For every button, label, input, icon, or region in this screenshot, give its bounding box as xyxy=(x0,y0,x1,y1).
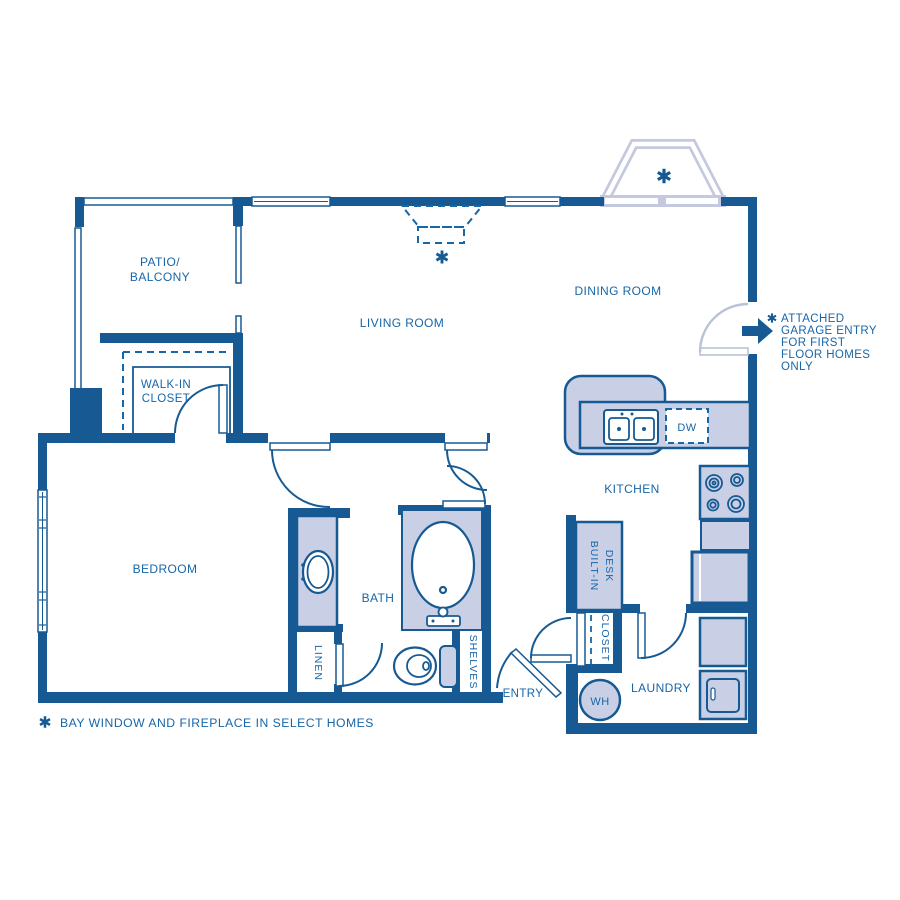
garage-annotation: ATTACHED GARAGE ENTRY FOR FIRST FLOOR HO… xyxy=(742,313,877,373)
water-heater: WH xyxy=(580,680,620,720)
top-wall-window xyxy=(505,197,560,206)
living-room-label: LIVING ROOM xyxy=(360,316,444,330)
garage-note-line4: FLOOR HOMES xyxy=(781,349,870,361)
closet-door xyxy=(577,613,585,666)
bath-door xyxy=(443,466,485,508)
bedroom-label: BEDROOM xyxy=(133,562,198,576)
doors xyxy=(175,304,748,697)
bay-window xyxy=(600,144,726,207)
room-labels: PATIO/ BALCONY LIVING ROOM DINING ROOM W… xyxy=(130,255,691,700)
garage-arrow-icon xyxy=(742,318,773,344)
linen-label: LINEN xyxy=(312,645,324,681)
toilet xyxy=(394,646,457,687)
garage-entry-door xyxy=(700,304,748,355)
dining-room-label: DINING ROOM xyxy=(574,284,661,298)
stove xyxy=(700,466,750,519)
patio-railing-left xyxy=(75,228,81,391)
patio-label-line1: PATIO/ xyxy=(140,255,180,269)
laundry-door xyxy=(638,613,686,658)
patio-slider-glass xyxy=(236,316,241,333)
asterisk-icon xyxy=(436,251,447,264)
footnote-text: BAY WINDOW AND FIREPLACE IN SELECT HOMES xyxy=(60,716,374,730)
floor-plan-svg: DW xyxy=(0,0,900,900)
dryer xyxy=(700,671,746,719)
entry-label: ENTRY xyxy=(503,688,544,700)
kitchen-label: KITCHEN xyxy=(604,482,659,496)
asterisk-icon xyxy=(40,716,50,728)
vanity-sink xyxy=(297,516,337,627)
built-in-desk-label-line2: DESK xyxy=(603,550,615,583)
built-in-desk-label-line1: BUILT-IN xyxy=(588,541,600,591)
top-wall-window xyxy=(252,197,330,206)
garage-note-line1: ATTACHED xyxy=(781,313,844,325)
bathtub xyxy=(402,510,482,630)
bedroom-window xyxy=(38,490,47,632)
dishwasher-label: DW xyxy=(677,422,696,434)
garage-note-line2: GARAGE ENTRY xyxy=(781,325,877,337)
kitchen-counter-lower xyxy=(701,521,750,550)
shelves-label: SHELVES xyxy=(467,635,479,690)
walk-in-closet-label-line2: CLOSET xyxy=(142,393,190,405)
closet-label: CLOSET xyxy=(599,614,611,662)
patio-railing-top xyxy=(84,198,233,205)
footnote: BAY WINDOW AND FIREPLACE IN SELECT HOMES xyxy=(40,716,374,730)
hall-door xyxy=(531,618,571,662)
refrigerator xyxy=(692,552,749,603)
kitchen-sink xyxy=(604,410,658,444)
water-heater-label: WH xyxy=(590,696,609,708)
washer xyxy=(700,618,746,666)
garage-note-line3: FOR FIRST xyxy=(781,337,845,349)
asterisk-icon xyxy=(658,169,670,183)
walk-in-closet-label-line1: WALK-IN xyxy=(141,379,191,391)
dishwasher: DW xyxy=(666,409,708,443)
linen-door xyxy=(336,643,382,686)
bath-label: BATH xyxy=(362,591,395,605)
asterisk-icon xyxy=(768,313,776,322)
bedroom-door xyxy=(270,443,330,507)
patio-slider-glass xyxy=(236,226,241,283)
fireplace-outline xyxy=(402,206,482,263)
floor-plan-page: DW xyxy=(0,0,900,900)
laundry-label: LAUNDRY xyxy=(631,681,691,695)
patio-label-line2: BALCONY xyxy=(130,270,190,284)
hall-closet xyxy=(577,613,591,666)
garage-note-line5: ONLY xyxy=(781,361,813,373)
